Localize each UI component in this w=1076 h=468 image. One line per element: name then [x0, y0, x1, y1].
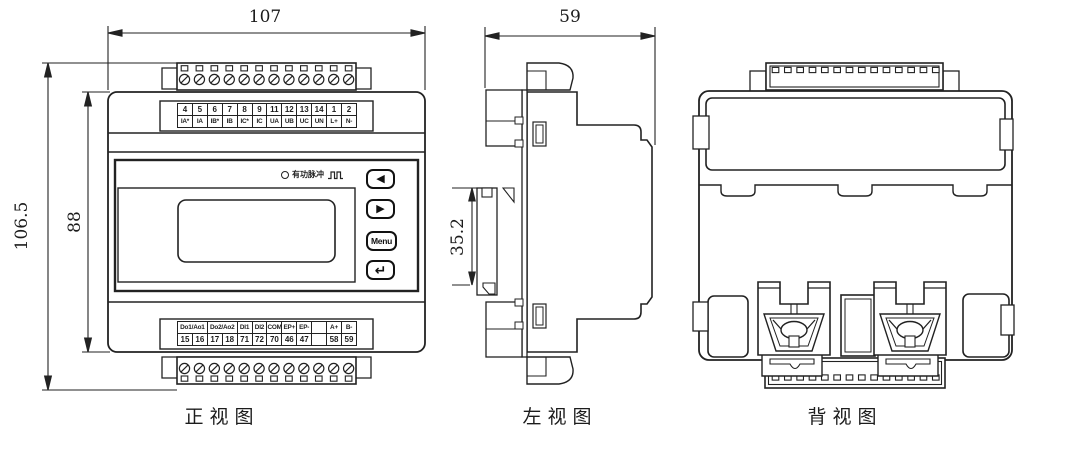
- enter-button: ↵: [366, 260, 395, 280]
- top-terminal-table: 4 5 6 7 8 9 11 12 13 14 1 2 IA* IA IB* I…: [177, 103, 357, 128]
- terminal-label: IA*: [178, 116, 193, 128]
- terminal-number: 70: [267, 334, 282, 346]
- terminal-number: 12: [282, 104, 297, 116]
- active-pulse-indicator: 有功脉冲: [281, 170, 344, 180]
- back-view-caption: 背视图: [770, 402, 920, 429]
- technical-drawing-canvas: 107 59 106.5 88 35.2 有功脉冲 ◀ ▶ Menu ↵ 4 5…: [0, 0, 1076, 468]
- left-view-drawing: [452, 27, 655, 384]
- terminal-number: 14: [312, 104, 327, 116]
- terminal-number: 46: [282, 334, 297, 346]
- terminal-label: UB: [282, 116, 297, 128]
- terminal-label: EP-: [297, 322, 312, 334]
- back-top-terminal-strip: [750, 63, 959, 92]
- terminal-number: 6: [207, 104, 222, 116]
- terminal-label: IA: [192, 116, 207, 128]
- terminal-label: B-: [341, 322, 356, 334]
- pulse-led-label: 有功脉冲: [292, 170, 324, 180]
- terminal-number: 18: [222, 334, 237, 346]
- dimension-label-width-107: 107: [229, 7, 301, 27]
- top-terminal-labels-row: IA* IA IB* IB IC* IC UA UB UC UN L+ N-: [178, 116, 357, 128]
- bottom-terminal-table: Do1/Ao1 Do2/Ao2 DI1 DI2 COM EP+ EP- A+ B…: [177, 321, 357, 346]
- top-terminal-numbers-row: 4 5 6 7 8 9 11 12 13 14 1 2: [178, 104, 357, 116]
- terminal-number: 59: [341, 334, 356, 346]
- bottom-terminal-numbers-row: 15 16 17 18 71 72 70 46 47 58 59: [178, 334, 357, 346]
- top-screw-terminal-block: [162, 63, 371, 90]
- back-right-latch-window-top: [1000, 119, 1013, 150]
- top-connector-profile: [527, 63, 573, 90]
- terminal-number: 16: [192, 334, 207, 346]
- terminal-label: IB: [222, 116, 237, 128]
- terminal-label: N-: [341, 116, 356, 128]
- terminal-number: 17: [207, 334, 222, 346]
- terminal-label: Do2/Ao2: [207, 322, 237, 334]
- pulse-led-icon: [281, 171, 289, 179]
- terminal-number: 13: [297, 104, 312, 116]
- terminal-number: 71: [237, 334, 252, 346]
- left-view-caption: 左视图: [485, 402, 635, 429]
- pulse-waveform-icon: [327, 170, 344, 180]
- terminal-label: UA: [267, 116, 282, 128]
- terminal-number: 1: [327, 104, 342, 116]
- dimension-label-clip-35-2: 35.2: [448, 200, 468, 274]
- bottom-terminal-labels-row: Do1/Ao1 Do2/Ao2 DI1 DI2 COM EP+ EP- A+ B…: [178, 322, 357, 334]
- terminal-number: 5: [192, 104, 207, 116]
- terminal-number: [312, 334, 327, 346]
- menu-button: Menu: [366, 231, 397, 251]
- terminal-label: DI1: [237, 322, 252, 334]
- bottom-screw-terminal-block: [162, 357, 371, 384]
- terminal-label: IB*: [207, 116, 222, 128]
- line-art: [0, 0, 1076, 468]
- terminal-number: 9: [252, 104, 267, 116]
- terminal-label: [312, 322, 327, 334]
- left-body-profile: [522, 63, 652, 384]
- back-bottom-blocks: [693, 294, 1014, 357]
- terminal-number: 58: [327, 334, 342, 346]
- terminal-label: UC: [297, 116, 312, 128]
- dimension-label-depth-59: 59: [534, 7, 606, 27]
- terminal-number: 15: [178, 334, 193, 346]
- terminal-label: L+: [327, 116, 342, 128]
- dimension-label-body-height-88: 88: [65, 186, 85, 258]
- terminal-label: EP+: [282, 322, 297, 334]
- terminal-number: 4: [178, 104, 193, 116]
- terminal-number: 72: [252, 334, 267, 346]
- terminal-label: Do1/Ao1: [178, 322, 208, 334]
- back-left-latch-window-top: [693, 116, 709, 149]
- terminal-number: 11: [267, 104, 282, 116]
- terminal-label: IC*: [237, 116, 252, 128]
- din-rail-clip-side: [477, 188, 514, 295]
- terminal-label: COM: [267, 322, 282, 334]
- prev-button: ◀: [366, 169, 395, 189]
- bottom-connector-profile: [527, 357, 573, 384]
- front-panel-edge: [522, 90, 527, 357]
- terminal-label: A+: [327, 322, 342, 334]
- terminal-number: 7: [222, 104, 237, 116]
- terminal-number: 47: [297, 334, 312, 346]
- terminal-label: UN: [312, 116, 327, 128]
- terminal-label: IC: [252, 116, 267, 128]
- terminal-number: 8: [237, 104, 252, 116]
- front-view-caption: 正视图: [147, 402, 297, 429]
- terminal-number: 2: [341, 104, 356, 116]
- back-view-drawing: [693, 63, 1014, 388]
- next-button: ▶: [366, 199, 395, 219]
- terminal-label: DI2: [252, 322, 267, 334]
- dimension-label-total-height-106-5: 106.5: [12, 188, 32, 264]
